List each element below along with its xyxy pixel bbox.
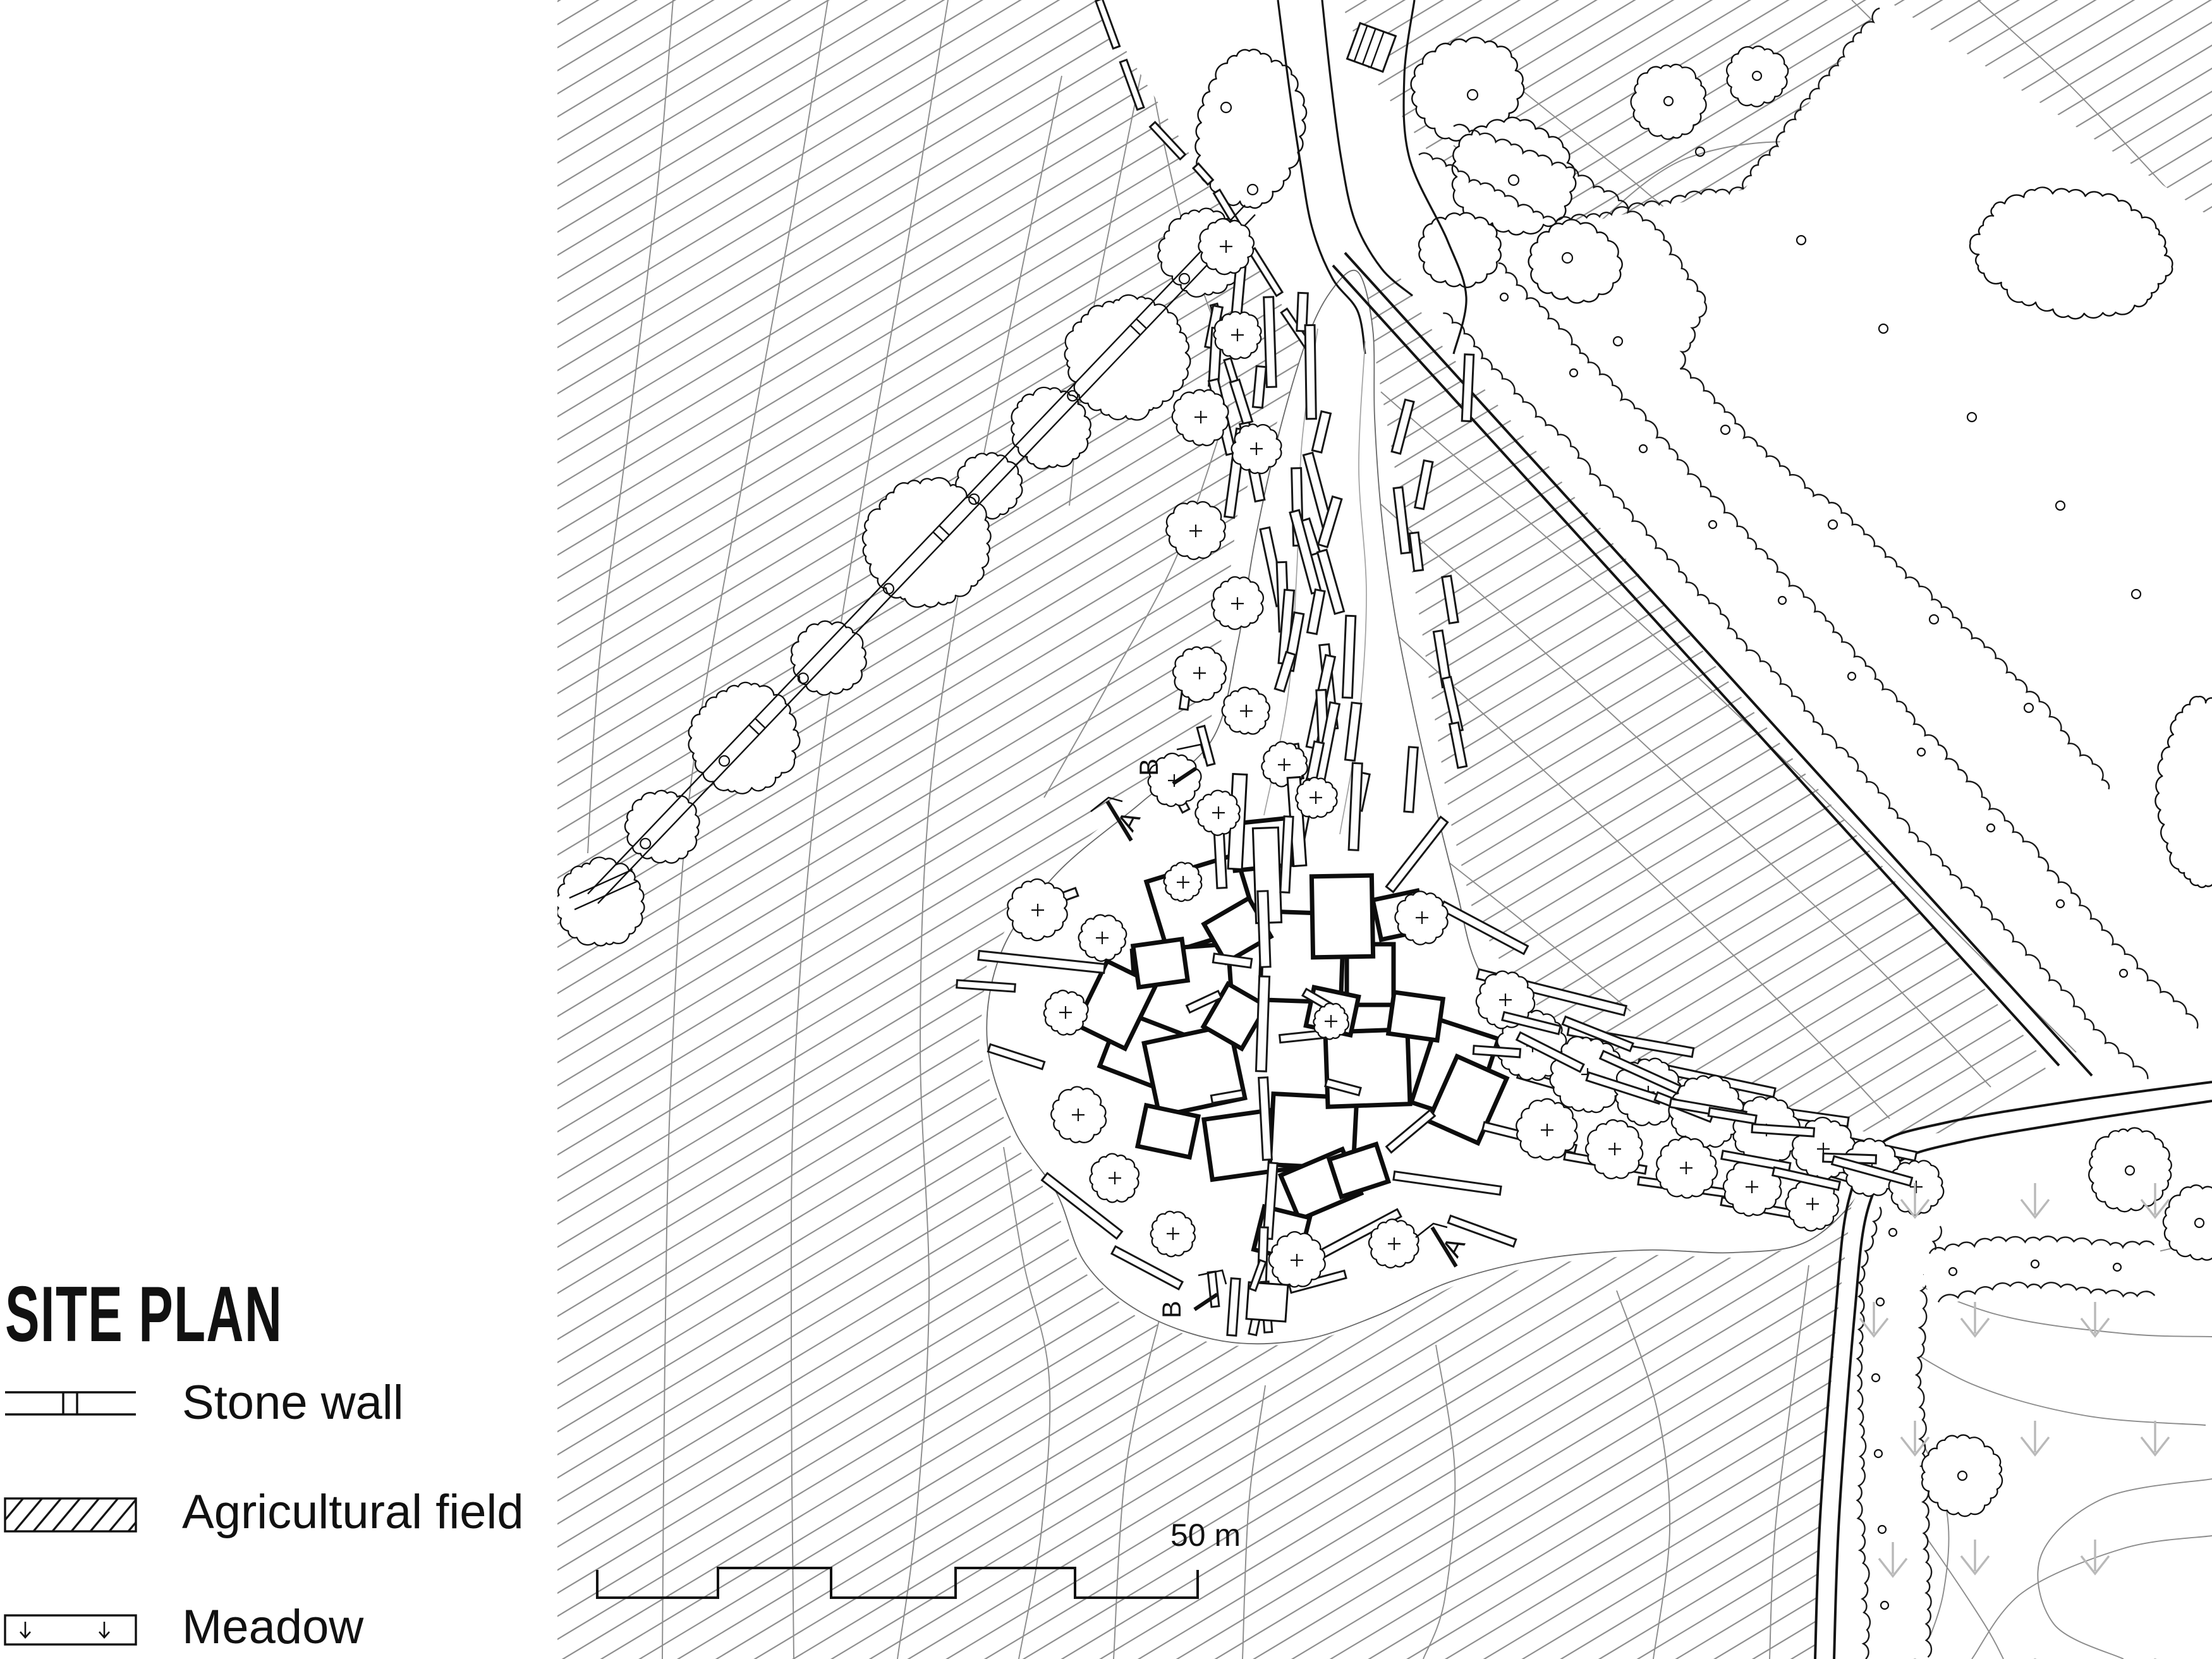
svg-text:Stone wall: Stone wall [182, 1376, 404, 1430]
svg-text:Agricultural field: Agricultural field [182, 1485, 524, 1539]
svg-text:Meadow: Meadow [182, 1600, 364, 1654]
svg-text:B: B [1157, 1301, 1186, 1318]
svg-text:50 m: 50 m [1170, 1517, 1241, 1553]
svg-text:SITE PLAN: SITE PLAN [5, 1271, 283, 1358]
svg-text:B: B [1134, 758, 1164, 776]
